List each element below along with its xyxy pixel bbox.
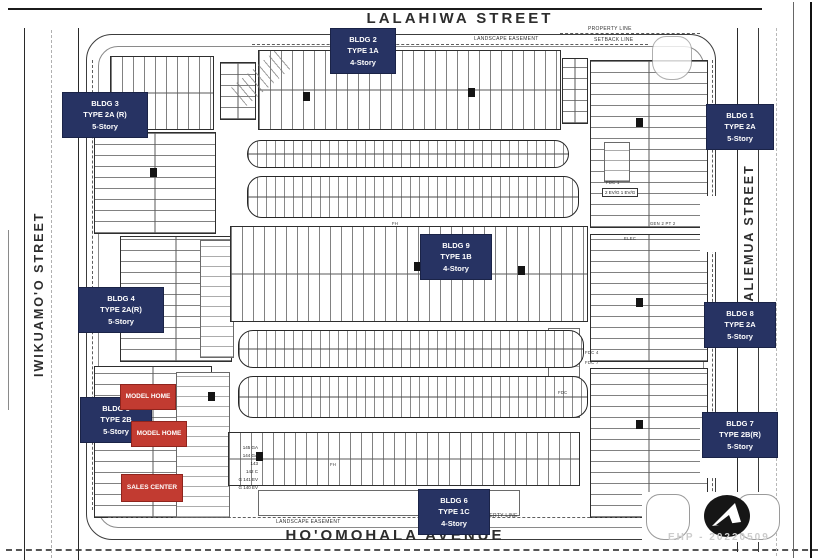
bldg-label-line: BLDG 2 bbox=[334, 34, 392, 45]
street-name-west: IWIKUAMO'O STREET bbox=[32, 192, 46, 396]
west-street-centerline bbox=[51, 30, 52, 558]
fdc-note: FDC bbox=[558, 390, 568, 395]
parking-row-north-1 bbox=[247, 140, 569, 168]
bldg-label-line: 5-Story bbox=[82, 316, 160, 327]
model-home-label-2: MODEL HOME bbox=[131, 421, 187, 447]
bldg-8-label: BLDG 8 TYPE 2A 5-Story bbox=[704, 302, 776, 348]
street-name-north: LALAHIWA STREET bbox=[340, 10, 580, 27]
building-wing-bldg2 bbox=[258, 50, 561, 130]
unit-number: 145 GA bbox=[228, 444, 258, 452]
unit-number: 142 C bbox=[228, 468, 258, 476]
model-home-label-1: MODEL HOME bbox=[120, 384, 176, 410]
bldg-3-label: BLDG 3 TYPE 2A (R) 5-Story bbox=[62, 92, 148, 138]
fdc4-note: FDC 4 bbox=[585, 350, 599, 355]
bldg-6-label: BLDG 6 TYPE 1C 4-Story bbox=[418, 489, 490, 535]
setback-line-top bbox=[560, 33, 700, 34]
property-line-note-top: PROPERTY LINE bbox=[588, 26, 632, 32]
property-line-bottom bbox=[108, 517, 700, 518]
building-core bbox=[208, 392, 215, 401]
bldg-label-line: BLDG 6 bbox=[422, 495, 486, 506]
marker-label-text: MODEL HOME bbox=[134, 429, 184, 438]
bldg-label-line: 5-Story bbox=[710, 133, 770, 144]
bldg-label-line: TYPE 2B(R) bbox=[706, 429, 774, 440]
northeast-driveway-bulb bbox=[652, 36, 692, 80]
fh-note-south: FH bbox=[330, 462, 336, 467]
unit-number: 144 GA bbox=[228, 452, 258, 460]
bldg-label-line: BLDG 3 bbox=[66, 98, 144, 109]
building-core bbox=[303, 92, 310, 101]
west-page-edge-line bbox=[8, 230, 9, 410]
landscape-easement-note-bottom: LANDSCAPE EASEMENT bbox=[276, 519, 341, 525]
bldg-label-line: BLDG 9 bbox=[424, 240, 488, 251]
garage-strip-bldg4 bbox=[200, 240, 234, 358]
parking-row-south-2 bbox=[238, 376, 588, 418]
bldg-4-label: BLDG 4 TYPE 2A(R) 5-Story bbox=[78, 287, 164, 333]
bldg-2-label: BLDG 2 TYPE 1A 4-Story bbox=[330, 28, 396, 74]
bldg-label-line: 5-Story bbox=[66, 121, 144, 132]
setback-line-note-top: SETBACK LINE bbox=[594, 37, 633, 43]
bldg-label-line: TYPE 2A (R) bbox=[66, 109, 144, 120]
bldg-7-label: BLDG 7 TYPE 2B(R) 5-Story bbox=[702, 412, 778, 458]
building-core bbox=[518, 266, 525, 275]
marker-label-text: SALES CENTER bbox=[124, 483, 180, 492]
landscape-easement-line-top bbox=[252, 44, 648, 45]
unit-number-stack: 145 GA 144 GA 143 142 C G 141 EV G 140 E… bbox=[228, 444, 258, 492]
parking-row-north-2 bbox=[247, 176, 579, 218]
plan-number-watermark: EHP - 20220509 bbox=[668, 532, 770, 543]
building-wing-bldg8 bbox=[590, 234, 708, 362]
east-street-centerline bbox=[776, 28, 777, 556]
bldg-9-label: BLDG 9 TYPE 1B 4-Story bbox=[420, 234, 492, 280]
fdc1-note: FDC 1 bbox=[606, 180, 620, 185]
bldg-label-line: 4-Story bbox=[334, 57, 392, 68]
unit-number: 143 bbox=[228, 460, 258, 468]
south-street-edge-line bbox=[6, 549, 818, 551]
east-outer-road-line bbox=[793, 2, 794, 558]
unit-number: G 140 EV bbox=[228, 484, 258, 492]
building-core bbox=[150, 168, 157, 177]
building-wing-bldg3-west bbox=[94, 132, 216, 234]
gen-note: GEN 2 PT 2 bbox=[650, 221, 676, 226]
site-plan-sheet: LALAHIWA STREET HO'OMOHALA AVENUE IWIKUA… bbox=[0, 0, 825, 560]
driveway-gap-east-upper bbox=[700, 196, 718, 252]
building-core bbox=[636, 118, 643, 127]
building-core bbox=[468, 88, 475, 97]
bldg-label-line: BLDG 1 bbox=[710, 110, 770, 121]
bldg-label-line: BLDG 7 bbox=[706, 418, 774, 429]
bldg-label-line: TYPE 1A bbox=[334, 45, 392, 56]
building-wing-bldg9 bbox=[230, 226, 588, 322]
garage-strip-bldg1-court bbox=[604, 142, 630, 182]
bldg-label-line: TYPE 2A(R) bbox=[82, 304, 160, 315]
east-page-border-line bbox=[810, 2, 812, 558]
bldg-label-line: TYPE 1C bbox=[422, 506, 486, 517]
building-wing-bldg2-east bbox=[562, 58, 588, 124]
building-core bbox=[636, 420, 643, 429]
building-wing-bldg6 bbox=[228, 432, 580, 486]
bldg-label-line: 5-Story bbox=[706, 441, 774, 452]
bldg-label-line: TYPE 2A bbox=[710, 121, 770, 132]
bldg-label-line: 4-Story bbox=[424, 263, 488, 274]
elec-note-east: ELEC bbox=[624, 236, 636, 241]
parking-row-south-1 bbox=[238, 330, 584, 368]
bldg-label-line: 5-Story bbox=[708, 331, 772, 342]
bldg-label-line: TYPE 1B bbox=[424, 251, 488, 262]
marker-label-text: MODEL HOME bbox=[123, 392, 173, 401]
bldg-label-line: TYPE 2A bbox=[708, 319, 772, 330]
bldg-1-label: BLDG 1 TYPE 2A 5-Story bbox=[706, 104, 774, 150]
west-street-line-outer bbox=[24, 28, 25, 560]
bldg-label-line: BLDG 8 bbox=[708, 308, 772, 319]
building-core bbox=[636, 298, 643, 307]
fh-note-center: FH bbox=[392, 221, 398, 226]
sales-center-label: SALES CENTER bbox=[121, 474, 183, 502]
landscape-easement-note-top: LANDSCAPE EASEMENT bbox=[474, 36, 539, 42]
bldg-label-line: 4-Story bbox=[422, 518, 486, 529]
unit-number: G 141 EV bbox=[228, 476, 258, 484]
bldg-label-line: BLDG 4 bbox=[82, 293, 160, 304]
fdc7-note: FDC 7 bbox=[585, 360, 599, 365]
ev-garage-note: 2 EV/G 1 EV/G bbox=[602, 188, 638, 197]
